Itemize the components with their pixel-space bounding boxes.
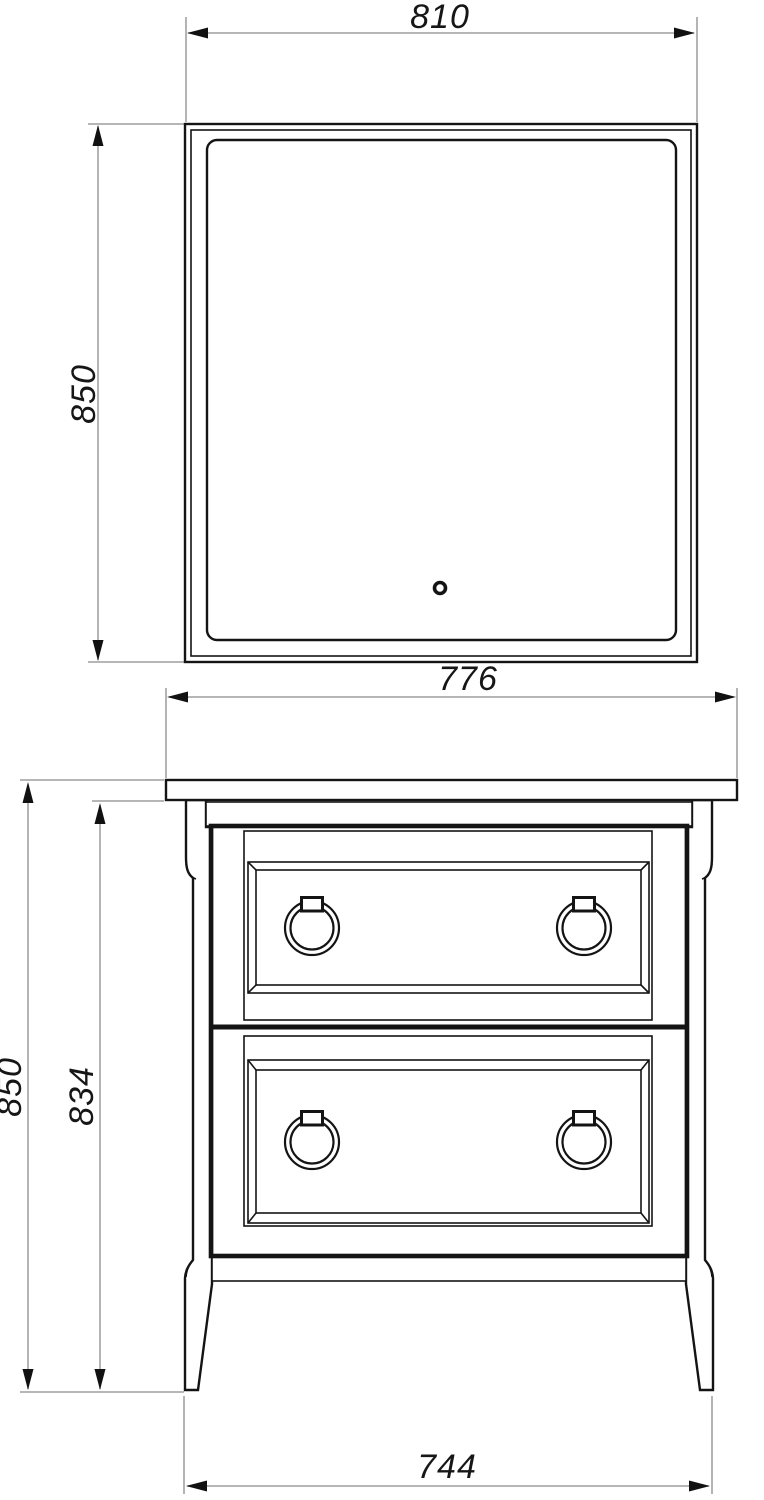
ring-handle[interactable] <box>285 1112 339 1170</box>
technical-drawing: 810 850 776 850 834 <box>0 0 764 1500</box>
bevel-corner <box>248 985 256 993</box>
arrowhead-down <box>93 640 104 661</box>
dimension-label-body-height: 834 <box>63 1066 101 1126</box>
countertop <box>166 780 737 800</box>
dimension-label-mirror-width: 810 <box>410 0 470 36</box>
dimension-label-mirror-height: 850 <box>65 364 103 424</box>
arrowhead-up <box>95 803 106 824</box>
drawer-bottom[interactable] <box>244 1036 652 1226</box>
dim-cabinet-base-width: 744 <box>184 1396 712 1494</box>
dim-cabinet-top-width: 776 <box>166 660 737 778</box>
top-rail <box>206 802 692 826</box>
ring-handle[interactable] <box>285 898 339 956</box>
bevel-corner <box>248 1060 256 1070</box>
arrowhead-right <box>674 28 695 39</box>
ring-handle[interactable] <box>557 898 611 956</box>
drawer-top[interactable] <box>244 831 652 1020</box>
drawing-sheet: 810 850 776 850 834 <box>0 0 764 1500</box>
arrowhead-left <box>187 28 208 39</box>
arrowhead-left <box>167 692 188 703</box>
ring-handle[interactable] <box>557 1112 611 1170</box>
arrowhead-right <box>715 692 736 703</box>
arrowhead-down <box>23 1369 34 1390</box>
arrowhead-right <box>689 1481 710 1492</box>
bevel-corner <box>641 985 649 993</box>
drawer-bevel-outer <box>248 862 649 993</box>
drawer-bevel-outer <box>248 1060 649 1223</box>
mirror-view <box>185 124 697 662</box>
drawer-panel <box>256 870 641 985</box>
dim-cabinet-body-height: 834 <box>63 801 164 1390</box>
arrowhead-up <box>93 125 104 146</box>
cabinet-right-leg <box>686 800 713 1390</box>
arrowhead-down <box>95 1369 106 1390</box>
drawer-box-frame <box>211 826 687 1256</box>
bevel-corner <box>641 862 649 870</box>
arrowhead-up <box>23 782 34 803</box>
drawer-face <box>244 831 652 1020</box>
dimension-label-base-width: 744 <box>417 1448 477 1486</box>
dimension-label-top-width: 776 <box>438 660 498 698</box>
bevel-corner <box>248 862 256 870</box>
drawer-face <box>244 1036 652 1226</box>
arrowhead-left <box>186 1481 207 1492</box>
cabinet-left-leg <box>185 800 212 1390</box>
bevel-corner <box>248 1213 256 1223</box>
drawer-panel <box>256 1070 641 1213</box>
bottom-apron <box>212 1256 686 1281</box>
bevel-corner <box>641 1060 649 1070</box>
cabinet-view <box>166 780 737 1390</box>
dim-mirror-width: 810 <box>186 0 697 122</box>
bevel-corner <box>641 1213 649 1223</box>
dimension-label-total-height: 850 <box>0 1057 29 1117</box>
dim-mirror-height: 850 <box>65 124 184 662</box>
